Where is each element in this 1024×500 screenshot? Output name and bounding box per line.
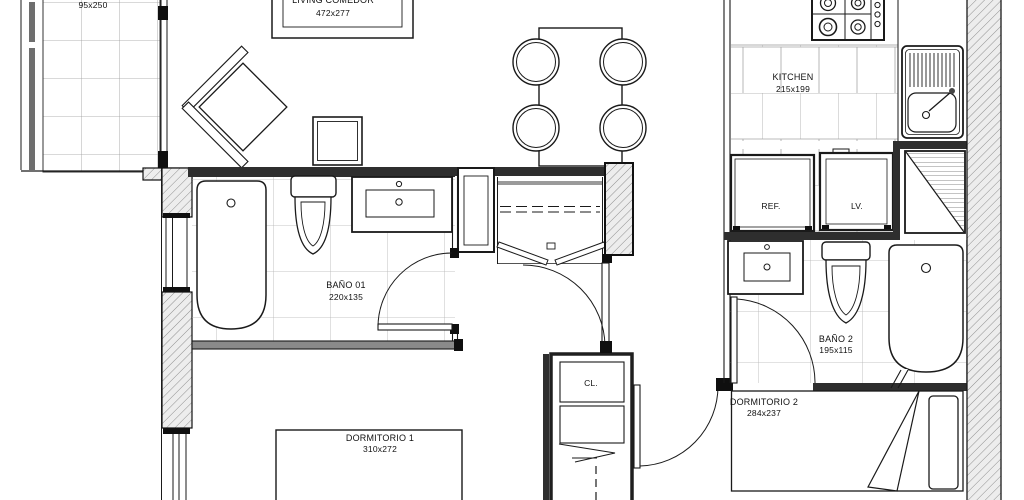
bath2-dims: 195x115 — [819, 345, 852, 355]
bathroom-1: BAÑO 01 220x135 — [192, 176, 459, 341]
left-exterior-wall — [143, 168, 192, 500]
closet-label: CL. — [584, 378, 598, 388]
vanity-sink-2 — [728, 241, 803, 294]
kitchen-name: KITCHEN — [773, 72, 814, 82]
stove-knob — [875, 12, 880, 17]
kitchen-dims: 215x199 — [776, 84, 810, 94]
bedroom-2: DORMITORIO 2 284x237 — [730, 391, 963, 491]
washer-label: LV. — [851, 201, 863, 211]
washing-machine: LV. — [820, 149, 893, 230]
bathroom-2: BAÑO 2 195x115 — [728, 240, 967, 391]
bathtub-drain — [227, 199, 235, 207]
floor-plan: 95x250 LIVING COMEDOR 472x277 — [0, 0, 1024, 500]
bath1-name: BAÑO 01 — [326, 280, 365, 290]
shaft-duct — [905, 151, 965, 233]
stove-knob — [875, 2, 880, 7]
refrigerator-label: REF. — [761, 201, 780, 211]
entry-cabinet — [458, 168, 494, 252]
bath1-door-leaf — [378, 324, 452, 330]
bedroom-1: DORMITORIO 1 310x272 — [192, 339, 463, 500]
balcony-tile-floor — [43, 0, 160, 172]
dining-set — [513, 28, 646, 166]
armchair — [181, 46, 303, 168]
refrigerator: REF. — [731, 155, 814, 231]
bed2-pillow — [929, 396, 958, 489]
right-exterior-wall — [967, 0, 1001, 500]
wall-column-hatched — [605, 163, 633, 255]
bath2-door-leaf — [731, 297, 737, 383]
floor-plan-drawing: 95x250 LIVING COMEDOR 472x277 — [0, 0, 1024, 500]
bath2-name: BAÑO 2 — [819, 334, 853, 344]
balcony: 95x250 — [21, 0, 168, 172]
side-table — [313, 117, 362, 165]
vanity-sink — [352, 177, 452, 232]
bedroom2-door-leaf — [634, 385, 640, 468]
dining-chair — [513, 39, 559, 85]
wall — [192, 341, 456, 349]
dining-chair — [600, 105, 646, 151]
kitchen-sink — [902, 46, 963, 138]
entry-door-leaf — [602, 263, 609, 345]
closet-cl: CL. — [543, 341, 632, 500]
dining-chair — [513, 105, 559, 151]
window-jamb — [158, 6, 168, 20]
bedroom1-dims: 310x272 — [363, 444, 397, 454]
living-room-dims: 472x277 — [316, 8, 350, 18]
balcony-dims: 95x250 — [78, 0, 107, 10]
sink-basin — [908, 93, 956, 132]
hall-doors — [634, 378, 733, 468]
balcony-rail-segment — [29, 48, 35, 170]
balcony-rail-segment — [29, 2, 35, 42]
dining-chair — [600, 39, 646, 85]
bathtub2-drain — [922, 264, 931, 273]
wall-hatched-block — [162, 292, 192, 428]
window-jamb — [158, 151, 168, 168]
bedroom2-door-swing — [640, 386, 718, 466]
closet-door-leaf — [497, 242, 548, 265]
bedroom2-name: DORMITORIO 2 — [730, 397, 798, 407]
stove-knob — [875, 21, 880, 26]
entry-door-swing — [523, 265, 605, 346]
bed2-blanket-fold — [868, 391, 919, 491]
kitchen-tile-floor — [731, 45, 898, 141]
living-room-name: LIVING COMEDOR — [292, 0, 374, 5]
stove-cooktop — [812, 0, 884, 40]
bedroom1-name: DORMITORIO 1 — [346, 433, 414, 443]
closet-door-leaf — [555, 242, 606, 265]
bath1-dims: 220x135 — [329, 292, 363, 302]
living-room: LIVING COMEDOR 472x277 — [181, 0, 413, 168]
bedroom2-dims: 284x237 — [747, 408, 781, 418]
